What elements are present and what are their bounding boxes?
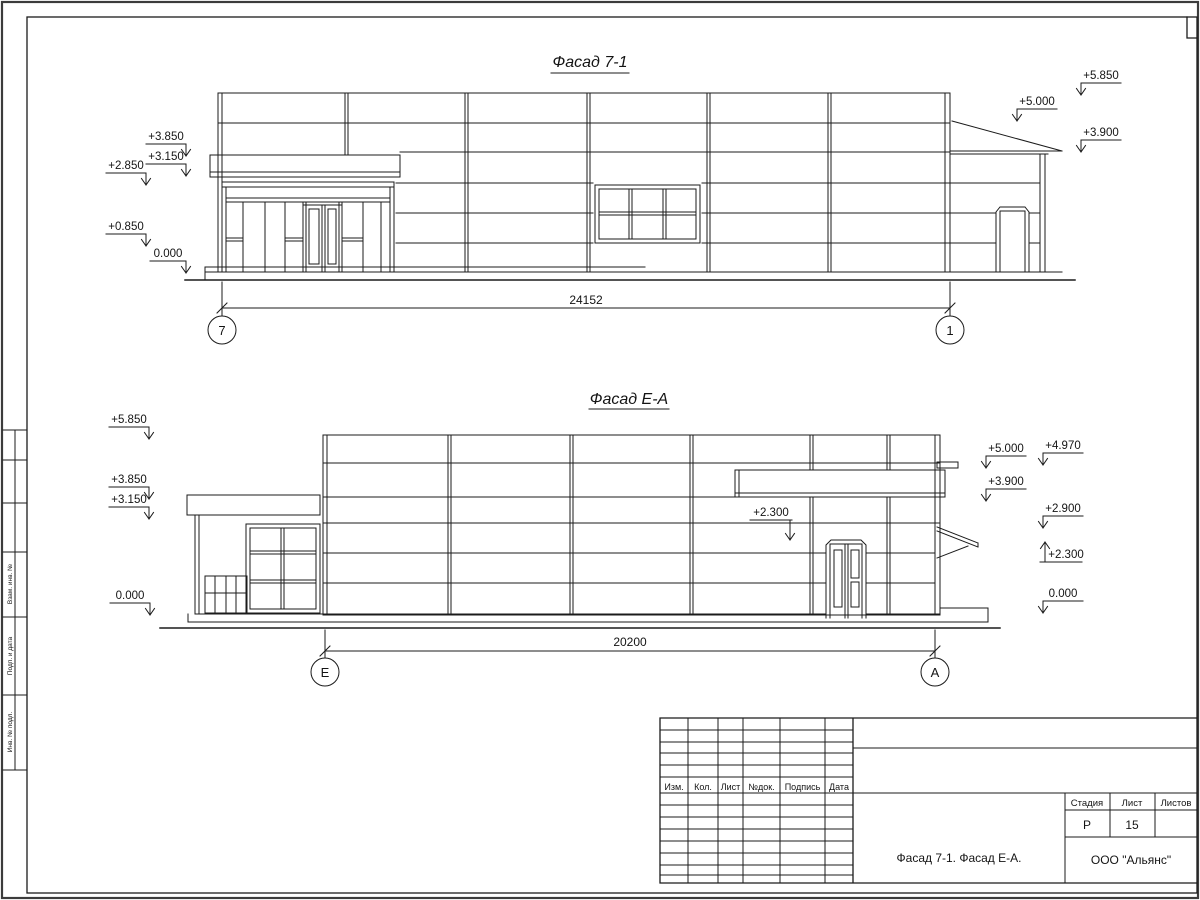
elevation-value: +2.850 [108, 160, 144, 172]
elevation-mark: +5.000 [982, 443, 1027, 468]
axis-label: А [931, 665, 940, 680]
elevation-mark: +5.850 [109, 414, 154, 439]
elevation-mark: +0.850 [106, 221, 151, 246]
elevation-value: +3.900 [988, 476, 1024, 488]
elevation-value: +3.150 [148, 151, 184, 163]
elevation-value: +2.300 [1048, 549, 1084, 561]
dimension-value: 24152 [569, 293, 603, 307]
revision-col-header: Лист [721, 782, 741, 792]
margin-label: Инв. № подл. [7, 712, 14, 753]
stage-header: Стадия [1071, 798, 1103, 809]
elevation-mark: 0.000 [150, 248, 191, 273]
elevation-value: +2.300 [753, 507, 789, 519]
elevation-mark: +5.850 [1077, 70, 1122, 95]
margin-stamp: Взам. инв. № Подп. и дата Инв. № подл. [3, 430, 27, 770]
margin-label: Подп. и дата [7, 636, 14, 675]
facade1-entrance [210, 155, 400, 272]
revision-col-header: Подпись [785, 782, 821, 792]
facade2-title: Фасад Е-А [590, 391, 668, 408]
elevation-value: +5.000 [988, 443, 1024, 455]
revision-col-header: Дата [829, 782, 849, 792]
elevation-mark: +3.900 [982, 476, 1027, 501]
elevation-value: +3.900 [1083, 127, 1119, 139]
titleblock: Изм. Кол. Лист №док. Подпись Дата Стадия… [660, 718, 1197, 883]
elevation-mark: 0.000 [1039, 588, 1084, 613]
dimension-value: 20200 [613, 635, 647, 649]
elevation-value: +5.850 [111, 414, 147, 426]
elevation-value: 0.000 [1049, 588, 1078, 600]
axis-label: Е [321, 665, 330, 680]
elevation-value: +4.970 [1045, 440, 1081, 452]
facade1-title: Фасад 7-1 [553, 54, 628, 71]
elevation-mark: +4.970 [1039, 440, 1084, 465]
facade1-dimension: 24152 7 1 [208, 282, 964, 344]
facade2-awning [937, 527, 978, 558]
elevation-value: 0.000 [154, 248, 183, 260]
company-name: ООО "Альянс" [1091, 853, 1171, 867]
axis-label: 7 [218, 323, 225, 338]
elevation-value: 0.000 [116, 590, 145, 602]
drawing-sheet: Взам. инв. № Подп. и дата Инв. № подл. Ф… [0, 0, 1200, 900]
sheet-header: Лист [1122, 798, 1143, 809]
elevation-value: +0.850 [108, 221, 144, 233]
sheets-header: Листов [1161, 798, 1192, 809]
revision-col-header: Кол. [694, 782, 712, 792]
revision-col-header: №док. [748, 782, 774, 792]
facade2-building-linework [160, 435, 1000, 628]
facade-e-a-view: Фасад Е-А [109, 391, 1084, 686]
stage-value: Р [1083, 818, 1091, 832]
drawing-canvas: Взам. инв. № Подп. и дата Инв. № подл. Ф… [0, 0, 1200, 900]
facade2-left-annex [187, 495, 320, 614]
elevation-value: +3.850 [148, 131, 184, 143]
elevation-mark: +2.300 [1040, 542, 1084, 562]
facade2-dimension: 20200 Е А [311, 630, 949, 686]
elevation-value: +2.900 [1045, 503, 1081, 515]
drawing-title: Фасад 7-1. Фасад Е-А. [897, 851, 1022, 865]
facade2-door [826, 540, 866, 618]
margin-label: Взам. инв. № [7, 564, 14, 604]
elevation-mark: 0.000 [110, 590, 155, 615]
elevation-mark: +2.850 [106, 160, 151, 185]
axis-label: 1 [946, 323, 953, 338]
revision-col-header: Изм. [664, 782, 683, 792]
elevation-mark: +2.900 [1039, 503, 1084, 528]
facade1-window [595, 185, 700, 243]
facade-7-1-view: Фасад 7-1 [106, 54, 1121, 344]
elevation-mark: +3.150 [146, 151, 191, 176]
elevation-value: +3.150 [111, 494, 147, 506]
elevation-mark: +3.900 [1077, 127, 1122, 152]
facade1-side-annex [950, 121, 1062, 272]
elevation-value: +3.850 [111, 474, 147, 486]
sheet-number: 15 [1125, 818, 1139, 832]
elevation-mark: +5.000 [1013, 96, 1058, 121]
elevation-mark: +3.150 [109, 494, 154, 519]
elevation-value: +5.850 [1083, 70, 1119, 82]
elevation-value: +5.000 [1019, 96, 1055, 108]
